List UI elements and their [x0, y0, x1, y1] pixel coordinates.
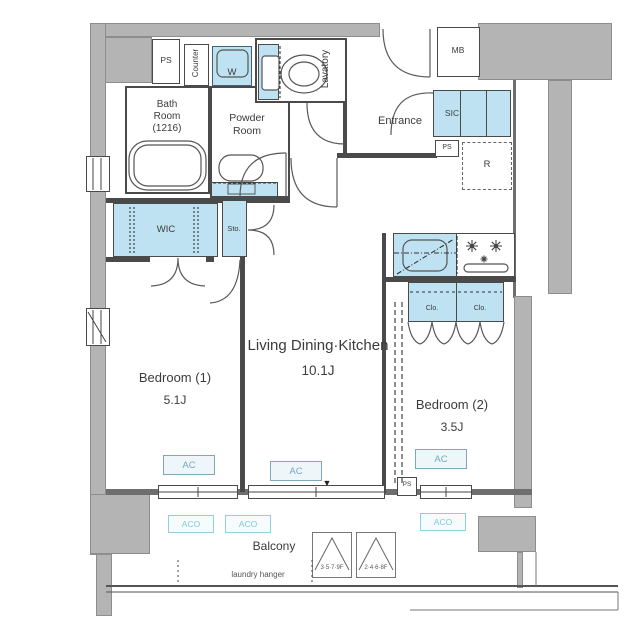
bedroom2-name-label: Bedroom (2) — [416, 398, 488, 411]
dashed-details — [130, 46, 502, 586]
stove-grill — [464, 264, 508, 272]
ac-label: AC — [182, 460, 195, 471]
ac-box-ldk: AC — [270, 461, 322, 481]
fridge-label: R — [484, 160, 491, 170]
toilet-tank — [262, 56, 279, 90]
powder-label-1: Powder — [229, 113, 265, 124]
balcony-panel-b-label: 2·4·6·8F — [364, 565, 387, 571]
ps-bottom-label: PS — [403, 482, 412, 489]
ps-mid-label: PS — [442, 144, 451, 151]
lavatory-label: Lavatory — [321, 34, 331, 104]
clo-label-1: Clo. — [426, 305, 438, 312]
entrance-label: Entrance — [378, 116, 422, 127]
balcony-railing — [106, 552, 618, 610]
hall-ldk-door-arc — [291, 158, 337, 207]
sic-label: SIC — [445, 109, 459, 118]
balcony-label: Balcony — [253, 540, 296, 552]
clo-label-2: Clo. — [474, 305, 486, 312]
ac-label: AC — [434, 454, 447, 465]
aco-box-1: ACO — [168, 515, 214, 533]
ac-box-bedroom2: AC — [415, 449, 467, 469]
aco-box-2: ACO — [225, 515, 271, 533]
laundry-hanger-label: laundry hanger — [231, 571, 284, 579]
mb-label: MB — [452, 46, 465, 55]
fixtures — [129, 50, 508, 272]
aco-box-3: ACO — [420, 513, 466, 531]
linework-layer — [0, 0, 640, 640]
window-lines — [88, 158, 472, 497]
aco-label: ACO — [434, 517, 452, 527]
washer-label: W — [228, 68, 237, 78]
vent-mark: ▼ — [323, 479, 332, 488]
bedroom2-size-label: 3.5J — [441, 421, 464, 433]
wic-label: WIC — [157, 225, 175, 235]
floor-plan: PS Counter W Lavatory Bath Room (1216) P… — [0, 0, 640, 640]
ldk-name-label: Living Dining·Kitchen — [248, 338, 389, 353]
closet-folding-doors — [408, 322, 504, 344]
stove-burner-icons — [466, 240, 502, 263]
vanity-bowl — [219, 155, 263, 181]
bath-label-3: (1216) — [153, 124, 182, 134]
aco-label: ACO — [239, 519, 257, 529]
sto-doors-arcs — [248, 205, 274, 255]
lavatory-door-arc — [307, 103, 345, 144]
bathtub-outer — [129, 141, 206, 190]
sliding-door-track — [395, 302, 402, 486]
aco-label: ACO — [182, 519, 200, 529]
front-door-arc — [383, 29, 430, 77]
ac-box-bedroom1: AC — [163, 455, 215, 475]
ldk-size-label: 10.1J — [301, 364, 334, 378]
balcony-panel-a-label: 3·5·7·9F — [320, 565, 343, 571]
bath-label-2: Room — [154, 112, 181, 122]
bedroom1-name-label: Bedroom (1) — [139, 371, 211, 384]
sic-door-arc — [391, 93, 433, 135]
bedroom1-door-arc — [210, 260, 240, 303]
wic-doors-arcs — [151, 258, 205, 286]
bath-label-1: Bath — [157, 100, 178, 110]
bedroom1-size-label: 5.1J — [164, 394, 187, 406]
ps-top-label: PS — [160, 56, 171, 65]
powder-label-2: Room — [233, 126, 261, 137]
sto-label: Sto. — [227, 225, 240, 233]
powder-door-arc — [240, 153, 286, 197]
counter-label: Counter — [192, 28, 200, 98]
ac-label: AC — [289, 466, 302, 477]
